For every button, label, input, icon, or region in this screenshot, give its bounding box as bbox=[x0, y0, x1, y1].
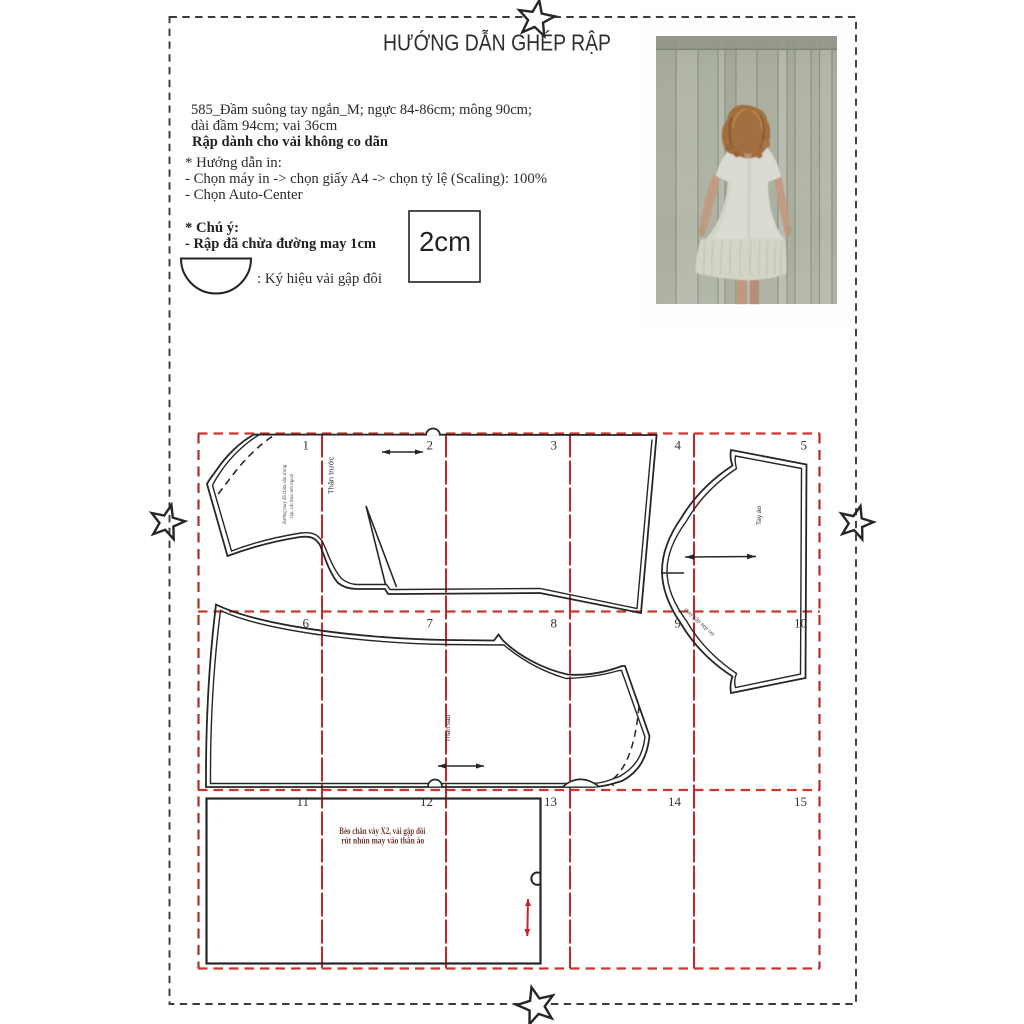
svg-text:15: 15 bbox=[794, 794, 807, 809]
svg-text:12: 12 bbox=[420, 794, 433, 809]
svg-text:dài đầm 94cm; vai 36cm: dài đầm 94cm; vai 36cm bbox=[191, 118, 338, 134]
svg-text:3: 3 bbox=[551, 438, 558, 453]
svg-text:585_Đầm suông tay ngắn_M; ngực: 585_Đầm suông tay ngắn_M; ngực 84-86cm; … bbox=[191, 102, 532, 118]
svg-text:4: 4 bbox=[675, 438, 682, 453]
svg-text:11: 11 bbox=[296, 794, 309, 809]
svg-text:- Chọn Auto-Center: - Chọn Auto-Center bbox=[185, 187, 303, 203]
svg-text:2cm: 2cm bbox=[419, 226, 471, 257]
svg-text:- Chọn máy in -> chọn giấy A4: - Chọn máy in -> chọn giấy A4 -> chọn tỷ… bbox=[185, 171, 547, 187]
svg-text:: Ký hiệu vải gập đôi: : Ký hiệu vải gập đôi bbox=[257, 271, 382, 287]
svg-text:7: 7 bbox=[427, 616, 434, 631]
svg-text:* Chú ý:: * Chú ý: bbox=[185, 220, 239, 236]
svg-text:rút nhún may vào thân áo: rút nhún may vào thân áo bbox=[341, 837, 424, 847]
svg-text:14: 14 bbox=[668, 794, 682, 809]
svg-text:Thân sau: Thân sau bbox=[445, 715, 452, 742]
svg-text:2: 2 bbox=[427, 438, 434, 453]
svg-text:rập, cắt theo nét ngoài: rập, cắt theo nét ngoài bbox=[289, 473, 295, 518]
svg-text:Tay áo: Tay áo bbox=[756, 505, 763, 525]
svg-text:13: 13 bbox=[544, 794, 557, 809]
svg-text:Bèo chân váy X2, vải gập đôi: Bèo chân váy X2, vải gập đôi bbox=[339, 827, 425, 837]
svg-text:* Hướng dẫn in:: * Hướng dẫn in: bbox=[185, 155, 282, 171]
svg-text:HƯỚNG DẪN GHÉP RẬP: HƯỚNG DẪN GHÉP RẬP bbox=[383, 28, 611, 56]
svg-text:5: 5 bbox=[801, 438, 808, 453]
svg-text:- Rập đã chừa đường may 1cm: - Rập đã chừa đường may 1cm bbox=[185, 236, 377, 252]
svg-text:1: 1 bbox=[303, 438, 310, 453]
svg-text:8: 8 bbox=[551, 616, 558, 631]
svg-text:Thân trước: Thân trước bbox=[327, 456, 336, 494]
svg-text:Rập dành cho vải không co dãn: Rập dành cho vải không co dãn bbox=[192, 134, 388, 150]
svg-text:đường may đã chừa sẵn trong: đường may đã chừa sẵn trong bbox=[282, 464, 288, 524]
